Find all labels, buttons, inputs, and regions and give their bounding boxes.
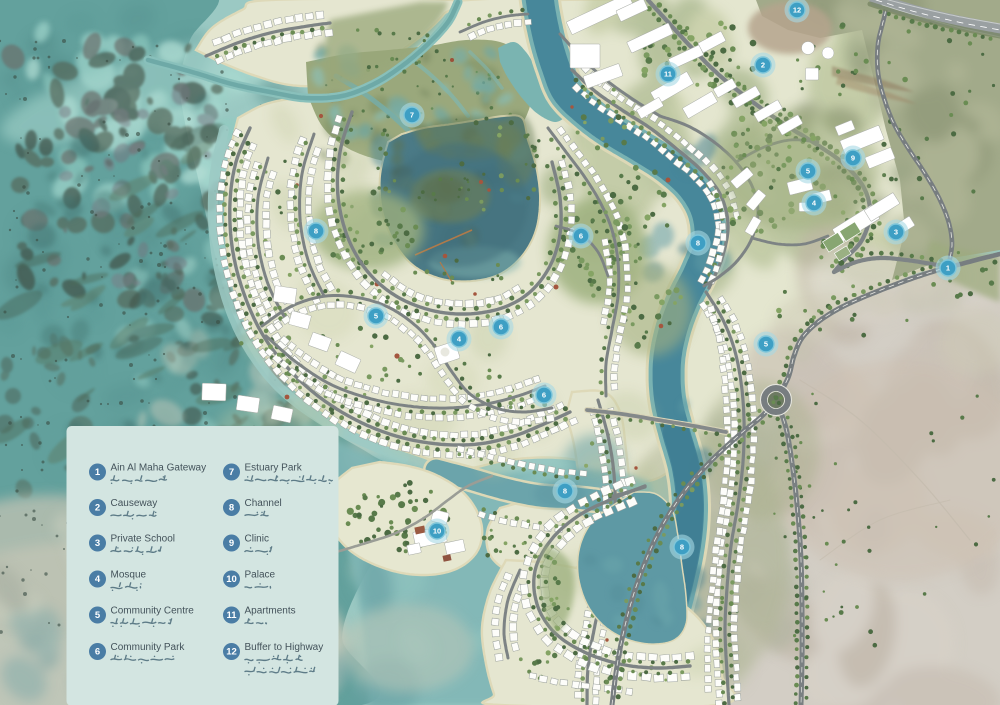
- svg-text:Private School: Private School: [111, 534, 175, 545]
- svg-text:1: 1: [946, 264, 950, 273]
- svg-text:Palace: Palace: [245, 570, 276, 581]
- svg-text:Community Park: Community Park: [111, 642, 186, 653]
- svg-text:Community Centre: Community Centre: [111, 606, 195, 617]
- svg-text:5: 5: [806, 167, 810, 176]
- svg-text:9: 9: [851, 154, 855, 163]
- svg-text:6: 6: [499, 323, 503, 332]
- svg-text:5: 5: [764, 340, 768, 349]
- svg-text:Apartments: Apartments: [245, 606, 296, 617]
- svg-text:Clinic: Clinic: [245, 534, 269, 545]
- svg-text:10: 10: [226, 574, 237, 585]
- svg-text:11: 11: [226, 610, 237, 621]
- svg-text:Causeway: Causeway: [111, 498, 158, 509]
- svg-text:6: 6: [542, 391, 546, 400]
- svg-text:12: 12: [226, 647, 237, 658]
- svg-text:12: 12: [793, 6, 801, 15]
- svg-text:9: 9: [229, 538, 234, 549]
- svg-text:2: 2: [95, 503, 100, 514]
- svg-text:2: 2: [761, 61, 765, 70]
- svg-text:Buffer to Highway: Buffer to Highway: [245, 642, 324, 653]
- svg-text:Estuary Park: Estuary Park: [245, 463, 303, 474]
- svg-text:5: 5: [374, 312, 378, 321]
- svg-text:7: 7: [229, 467, 234, 478]
- svg-text:7: 7: [410, 111, 414, 120]
- svg-text:1: 1: [95, 467, 101, 478]
- svg-text:3: 3: [894, 228, 898, 237]
- svg-text:8: 8: [314, 227, 318, 236]
- svg-text:Mosque: Mosque: [111, 570, 147, 581]
- svg-text:3: 3: [95, 538, 100, 549]
- svg-text:8: 8: [563, 487, 567, 496]
- svg-text:5: 5: [95, 610, 101, 621]
- svg-text:8: 8: [696, 239, 700, 248]
- svg-text:6: 6: [579, 232, 583, 241]
- svg-text:Ain Al Maha Gateway: Ain Al Maha Gateway: [111, 463, 207, 474]
- svg-text:10: 10: [433, 527, 441, 536]
- svg-text:6: 6: [95, 647, 100, 658]
- svg-text:4: 4: [95, 574, 101, 585]
- svg-text:Channel: Channel: [245, 498, 282, 509]
- svg-text:11: 11: [664, 70, 672, 79]
- svg-text:8: 8: [680, 543, 684, 552]
- svg-text:8: 8: [229, 503, 234, 514]
